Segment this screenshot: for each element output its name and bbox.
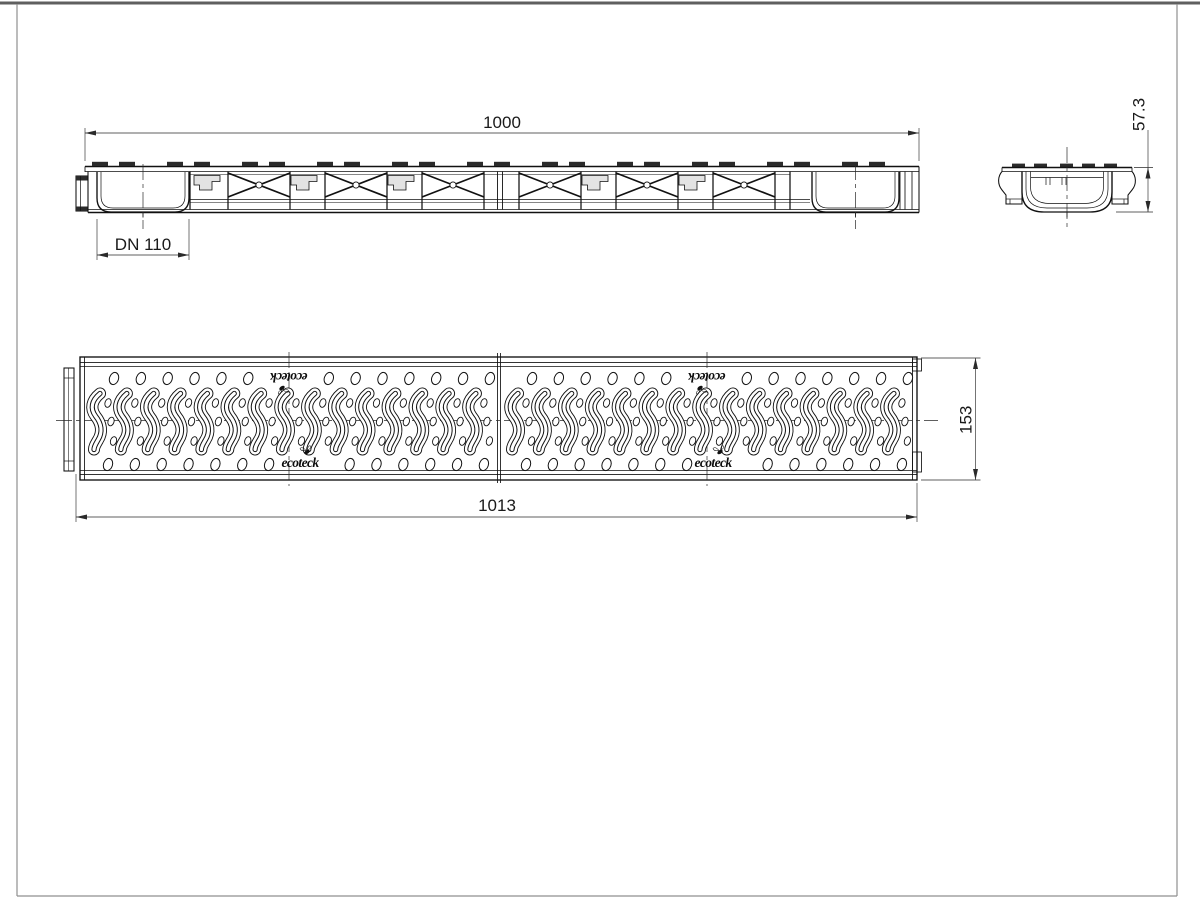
grate-hole-bottom <box>102 457 114 472</box>
grate-hole-small <box>107 416 115 426</box>
side-left-stub-cap-top <box>76 176 88 181</box>
side-grate-clips <box>92 162 885 166</box>
grate-hole-small <box>656 398 664 408</box>
grate-hole-small <box>871 398 879 408</box>
grate-hole-top <box>162 371 174 386</box>
grate-hole-top <box>188 371 200 386</box>
grate-clip-mark <box>269 162 285 166</box>
grate-hole-small <box>552 416 560 426</box>
dim-outlet-label: DN 110 <box>115 235 171 254</box>
grate-clip-mark <box>542 162 558 166</box>
grate-hole-small <box>372 398 380 408</box>
grate-hole-bottom <box>654 457 666 472</box>
grate-hole-bottom <box>182 457 194 472</box>
grate-hole-bottom <box>397 457 409 472</box>
grate-hole-bottom <box>627 457 639 472</box>
grate-hole-small <box>629 398 637 408</box>
x-brace-hub <box>353 182 359 188</box>
dimension-arrowhead <box>1146 168 1151 179</box>
grate-hole-small <box>480 398 488 408</box>
grate-hole-bottom <box>815 457 827 472</box>
grate-hole-bottom <box>547 457 559 472</box>
grate-hole-small <box>710 398 718 408</box>
x-brace-hub <box>547 182 553 188</box>
grate-hole-small <box>157 398 165 408</box>
grate-hole-top <box>376 371 388 386</box>
grate-hole-bottom <box>209 457 221 472</box>
dim-grate-width-label: 153 <box>957 406 976 434</box>
grate-clip-mark <box>692 162 708 166</box>
grate-hole-small <box>605 416 613 426</box>
grate-hole-small <box>402 416 410 426</box>
grate-hole-bottom <box>761 457 773 472</box>
grate-hole-top <box>848 371 860 386</box>
grate-hole-small <box>104 398 112 408</box>
grate-hole-small <box>898 398 906 408</box>
grate-hole-top <box>403 371 415 386</box>
grate-hole-small <box>632 416 640 426</box>
grate-hole-top <box>135 371 147 386</box>
logo-text: ecoteck <box>270 370 308 385</box>
lock-bracket <box>194 176 220 191</box>
grate-clip-mark <box>194 162 210 166</box>
dimension-arrowhead <box>973 358 978 369</box>
lock-bracket <box>291 176 317 191</box>
grate-hole-small <box>131 398 139 408</box>
grate-hole-small <box>790 398 798 408</box>
drawing-sheet: 1000 DN 110 <box>0 0 1200 900</box>
grate-hole-bottom <box>788 457 800 472</box>
channel-side-view: 1000 DN 110 <box>76 113 919 260</box>
grate-hole-small <box>453 398 461 408</box>
grate-clip-mark <box>794 162 810 166</box>
grate-hole-small <box>901 416 909 426</box>
grate-perforation-pattern <box>92 371 914 472</box>
grate-top-band <box>80 357 917 363</box>
grate-bottom-band <box>80 475 917 481</box>
grate-hole-top <box>349 371 361 386</box>
grate-hole-small <box>375 416 383 426</box>
bee-wing <box>713 448 719 451</box>
dimension-arrowhead <box>973 469 978 480</box>
grate-hole-small <box>522 398 530 408</box>
logo-ecoteck-top-right: ecoteck <box>688 370 726 394</box>
technical-drawing: 1000 DN 110 <box>0 0 1200 900</box>
grate-hole-small <box>214 416 222 426</box>
grate-hole-bottom <box>869 457 881 472</box>
grate-hole-top <box>108 371 120 386</box>
dimension-arrowhead <box>1146 201 1151 212</box>
grate-hole-small <box>683 398 691 408</box>
grate-hole-small <box>268 416 276 426</box>
grate-hole-top <box>323 371 335 386</box>
grate-clip-mark <box>617 162 633 166</box>
dim-height-label: 57.3 <box>1130 98 1149 131</box>
grate-hole-small <box>265 398 273 408</box>
grate-hole-top <box>606 371 618 386</box>
grate-hole-bottom <box>451 457 463 472</box>
grate-hole-small <box>211 398 219 408</box>
grate-clip-mark <box>767 162 783 166</box>
grate-hole-small <box>659 416 667 426</box>
grate-clip-mark <box>494 162 510 166</box>
grate-hole-small <box>187 416 195 426</box>
grate-hole-top <box>794 371 806 386</box>
grate-hole-bottom <box>343 457 355 472</box>
grate-clip-mark <box>644 162 660 166</box>
grate-hole-small <box>456 416 464 426</box>
grate-hole-top <box>484 371 496 386</box>
x-brace-hub <box>256 182 262 188</box>
dim-grate-length-label: 1013 <box>478 496 516 515</box>
grate-hole-small <box>578 416 586 426</box>
grate-hole-small <box>575 398 583 408</box>
logo-ecoteck-top-left: ecoteck <box>270 370 308 394</box>
grate-hole-bottom <box>600 457 612 472</box>
logo-text: ecoteck <box>694 455 732 470</box>
grate-clip-mark <box>569 162 585 166</box>
grate-hole-small <box>737 398 745 408</box>
grate-hole-top <box>821 371 833 386</box>
logo-text: ecoteck <box>281 455 319 470</box>
grate-hole-small <box>238 398 246 408</box>
dimension-length-1000: 1000 <box>85 113 919 161</box>
grate-hole-small <box>322 416 330 426</box>
grate-hole-small <box>602 398 610 408</box>
grate-clip-mark <box>92 162 108 166</box>
grate-hole-bottom <box>236 457 248 472</box>
grate-hole-small <box>820 416 828 426</box>
grate-hole-bottom <box>681 457 693 472</box>
grate-hole-small <box>740 416 748 426</box>
grate-hole-small <box>763 398 771 408</box>
dimension-arrowhead <box>906 515 917 520</box>
grate-top-view: ecoteck ecoteck ecoteck ecote <box>56 352 981 522</box>
grate-hole-bottom <box>263 457 275 472</box>
dimension-grate-width-153: 153 <box>921 358 981 480</box>
grate-hole-small <box>844 398 852 408</box>
grate-hole-bottom <box>520 457 532 472</box>
grate-clip-mark <box>119 162 135 166</box>
grate-clip-mark <box>344 162 360 166</box>
channel-section-view: 57.3 <box>999 98 1153 230</box>
grate-hole-top <box>741 371 753 386</box>
grate-clip-mark <box>419 162 435 166</box>
grate-hole-bottom <box>574 457 586 472</box>
grate-hole-small <box>793 416 801 426</box>
grate-hole-small <box>847 416 855 426</box>
grate-hole-small <box>485 436 493 446</box>
side-left-stub <box>76 176 88 211</box>
grate-clip-mark <box>317 162 333 166</box>
grate-hole-small <box>525 416 533 426</box>
dimension-arrowheads <box>76 131 1151 520</box>
grate-hole-bottom <box>156 457 168 472</box>
x-brace-hub <box>741 182 747 188</box>
grate-clip-mark <box>167 162 183 166</box>
grate-hole-small <box>184 398 192 408</box>
dimension-arrowhead <box>97 253 108 258</box>
grate-hole-top <box>580 371 592 386</box>
grate-hole-small <box>713 416 721 426</box>
grate-hole-top <box>457 371 469 386</box>
grate-hole-top <box>430 371 442 386</box>
grate-hole-small <box>426 398 434 408</box>
lock-bracket <box>679 176 705 191</box>
grate-hole-top <box>875 371 887 386</box>
grate-left-tab-clip <box>64 368 74 378</box>
x-brace-hub <box>644 182 650 188</box>
grate-hole-top <box>767 371 779 386</box>
grate-clip-mark <box>467 162 483 166</box>
grate-hole-bottom <box>424 457 436 472</box>
grate-hole-small <box>903 436 911 446</box>
side-left-stub-cap-bottom <box>76 207 88 212</box>
grate-hole-small <box>399 398 407 408</box>
grate-hole-top <box>633 371 645 386</box>
grate-hole-small <box>319 398 327 408</box>
dimension-height-57-3: 57.3 <box>1116 98 1153 212</box>
dimension-arrowhead <box>178 253 189 258</box>
grate-hole-small <box>295 416 303 426</box>
grate-hole-small <box>766 416 774 426</box>
dimension-arrowhead <box>85 131 96 136</box>
grate-hole-bottom <box>896 457 908 472</box>
grate-hole-small <box>817 398 825 408</box>
dimension-arrowhead <box>908 131 919 136</box>
grate-hole-top <box>215 371 227 386</box>
grate-hole-bottom <box>842 457 854 472</box>
grate-hole-small <box>874 416 882 426</box>
logo-text: ecoteck <box>688 370 726 385</box>
lock-bracket <box>582 176 608 191</box>
grate-hole-small <box>348 416 356 426</box>
grate-hole-small <box>160 416 168 426</box>
dimension-arrowhead <box>76 515 87 520</box>
grate-hole-top <box>242 371 254 386</box>
lock-bracket <box>388 176 414 191</box>
grate-hole-small <box>292 398 300 408</box>
grate-clip-mark <box>869 162 885 166</box>
dimension-grate-length-1013: 1013 <box>76 474 917 522</box>
grate-hole-small <box>549 398 557 408</box>
grate-hole-bottom <box>478 457 490 472</box>
x-brace-hub <box>450 182 456 188</box>
grate-clip-mark <box>719 162 735 166</box>
grate-hole-bottom <box>370 457 382 472</box>
grate-left-end-tab <box>64 368 74 471</box>
grate-hole-small <box>483 416 491 426</box>
grate-hole-bottom <box>129 457 141 472</box>
grate-hole-top <box>553 371 565 386</box>
grate-hole-top <box>526 371 538 386</box>
grate-clip-mark <box>242 162 258 166</box>
dim-length-label: 1000 <box>483 113 521 132</box>
grate-hole-small <box>345 398 353 408</box>
grate-left-tab-clip <box>64 461 74 471</box>
grate-hole-small <box>241 416 249 426</box>
grate-hole-small <box>429 416 437 426</box>
grate-clip-mark <box>392 162 408 166</box>
side-truss-structure <box>190 172 790 210</box>
grate-hole-top <box>660 371 672 386</box>
grate-hole-small <box>686 416 694 426</box>
grate-hole-small <box>134 416 142 426</box>
